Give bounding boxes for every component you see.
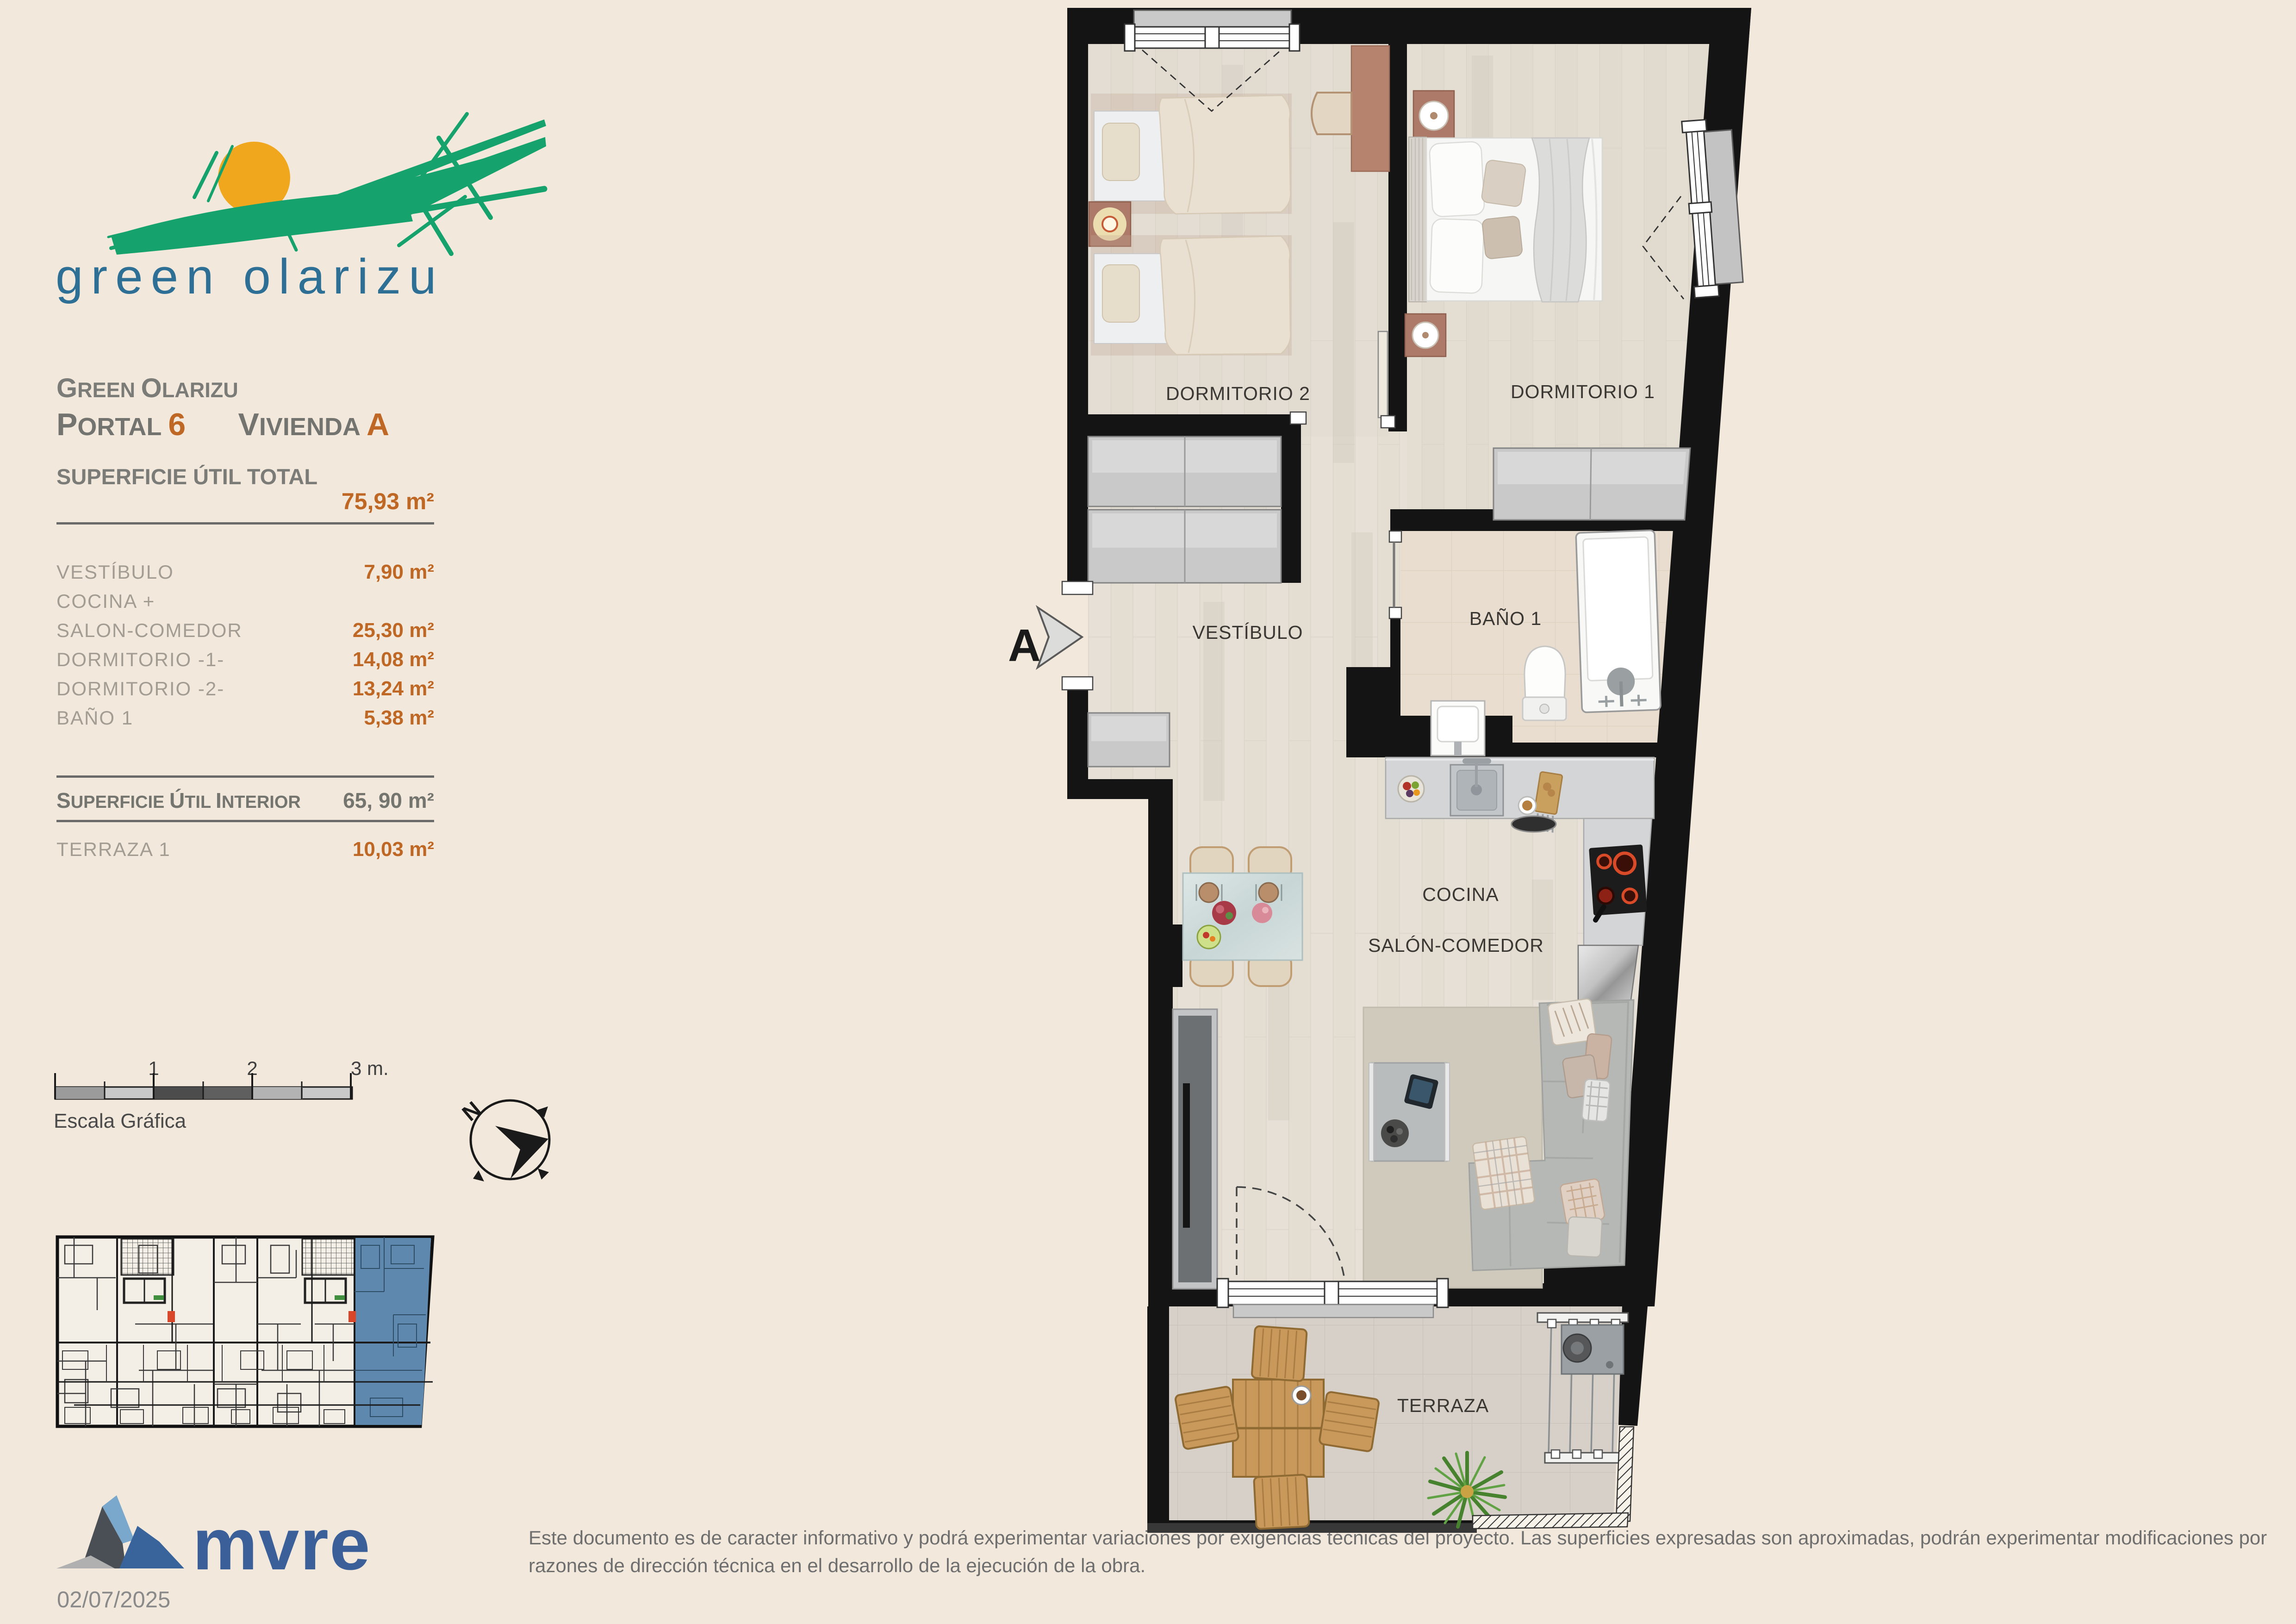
svg-text:VESTÍBULO: VESTÍBULO: [1192, 622, 1303, 643]
svg-text:7,90 m²: 7,90 m²: [364, 561, 434, 583]
svg-text:Escala Gráfica: Escala Gráfica: [54, 1110, 187, 1132]
svg-text:BAÑO 1: BAÑO 1: [56, 707, 133, 729]
svg-text:DORMITORIO 2: DORMITORIO 2: [1166, 383, 1310, 404]
svg-text:3 m.: 3 m.: [351, 1057, 389, 1079]
svg-text:65, 90 m²: 65, 90 m²: [343, 788, 434, 812]
svg-text:razones de dirección técnica e: razones de dirección técnica en el desar…: [529, 1555, 1145, 1576]
svg-text:SALON-COMEDOR: SALON-COMEDOR: [56, 619, 243, 641]
svg-text:green olarizu: green olarizu: [56, 249, 444, 304]
svg-text:COCINA +: COCINA +: [56, 590, 155, 612]
svg-text:TERRAZA 1: TERRAZA 1: [56, 838, 171, 860]
svg-text:SUPERFICIE ÚTIL TOTAL: SUPERFICIE ÚTIL TOTAL: [56, 464, 317, 489]
svg-text:02/07/2025: 02/07/2025: [57, 1587, 170, 1612]
svg-text:75,93 m²: 75,93 m²: [342, 488, 434, 514]
svg-text:VESTÍBULO: VESTÍBULO: [56, 561, 174, 583]
svg-text:5,38 m²: 5,38 m²: [364, 706, 434, 729]
svg-text:mvre: mvre: [193, 1504, 371, 1585]
svg-text:A: A: [1008, 620, 1041, 671]
svg-text:DORMITORIO -2-: DORMITORIO -2-: [56, 678, 224, 700]
svg-text:13,24 m²: 13,24 m²: [353, 677, 434, 700]
svg-text:TERRAZA: TERRAZA: [1397, 1395, 1489, 1416]
svg-text:DORMITORIO -1-: DORMITORIO -1-: [56, 649, 224, 670]
svg-text:BAÑO 1: BAÑO 1: [1469, 608, 1542, 629]
svg-text:25,30 m²: 25,30 m²: [353, 619, 434, 642]
svg-text:10,03 m²: 10,03 m²: [353, 838, 434, 861]
svg-text:DORMITORIO 1: DORMITORIO 1: [1511, 381, 1655, 402]
svg-text:SALÓN-COMEDOR: SALÓN-COMEDOR: [1368, 935, 1544, 956]
svg-text:COCINA: COCINA: [1422, 884, 1499, 905]
svg-text:14,08 m²: 14,08 m²: [353, 648, 434, 671]
